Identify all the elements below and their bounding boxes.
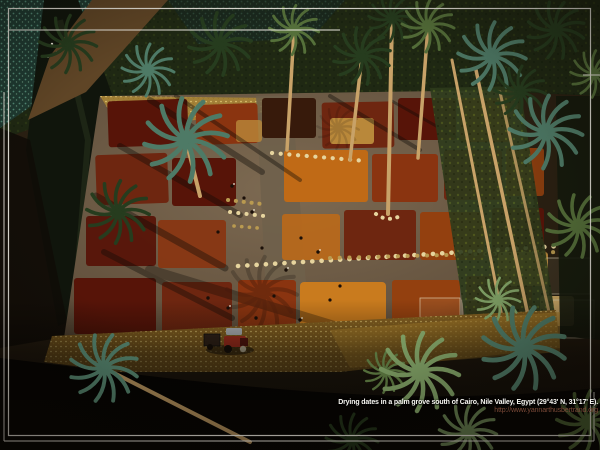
aerial-photo-scene <box>0 0 600 450</box>
photo-caption: Drying dates in a palm grove south of Ca… <box>338 399 598 407</box>
website-url: http://www.yannarthusbertrand.org <box>338 407 598 415</box>
photo-wallpaper: Drying dates in a palm grove south of Ca… <box>0 0 600 450</box>
photo-caption-block: Drying dates in a palm grove south of Ca… <box>338 399 598 415</box>
